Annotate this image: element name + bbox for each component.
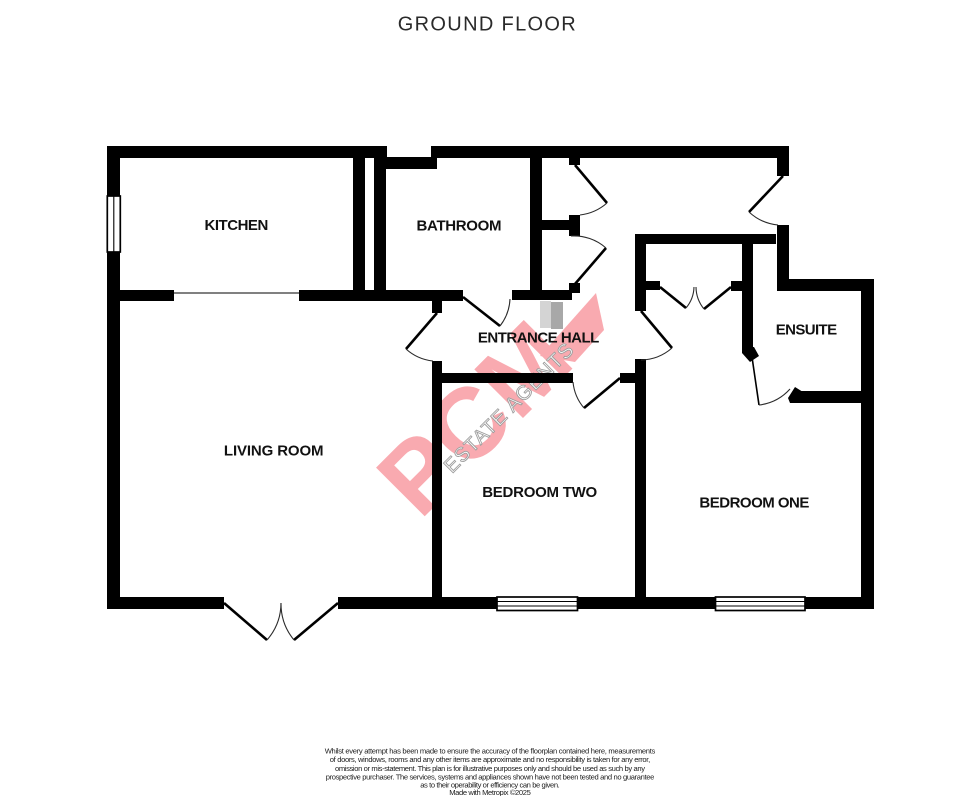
svg-text:ENTRANCE HALL: ENTRANCE HALL [478, 329, 599, 346]
svg-text:KITCHEN: KITCHEN [205, 217, 269, 234]
svg-text:GROUND FLOOR: GROUND FLOOR [398, 14, 577, 36]
svg-text:LIVING ROOM: LIVING ROOM [224, 443, 324, 460]
svg-text:ENSUITE: ENSUITE [776, 322, 837, 339]
svg-text:BATHROOM: BATHROOM [417, 217, 502, 234]
svg-text:BEDROOM ONE: BEDROOM ONE [699, 495, 809, 512]
svg-text:Made with Metropix ©2025: Made with Metropix ©2025 [449, 788, 531, 796]
svg-text:BEDROOM TWO: BEDROOM TWO [482, 484, 597, 501]
